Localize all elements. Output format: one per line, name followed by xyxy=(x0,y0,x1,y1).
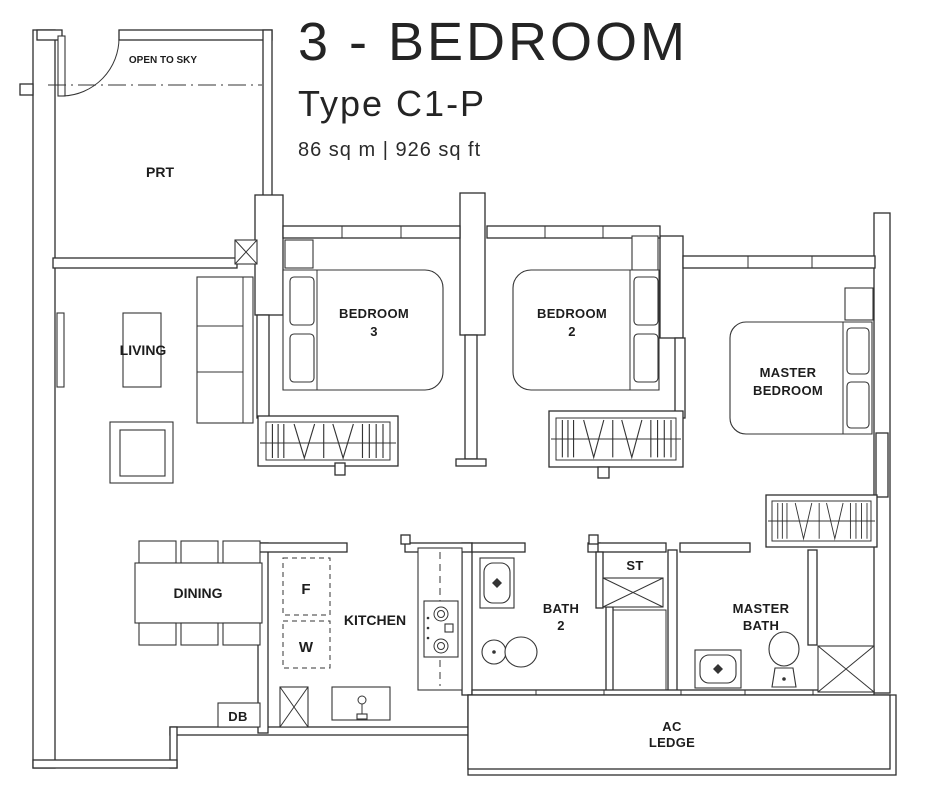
room-living: LIVING xyxy=(57,277,253,483)
bedside-table xyxy=(285,240,313,268)
bedroom2-label-2: 2 xyxy=(568,324,576,339)
st-label: ST xyxy=(626,558,643,573)
prt-door-swing xyxy=(63,38,119,96)
store-room: ST xyxy=(603,558,663,607)
dining-label: DINING xyxy=(174,585,223,601)
wardrobe-bedroom2 xyxy=(549,411,683,478)
bath2-shower xyxy=(613,610,666,690)
bedside-table xyxy=(845,288,873,320)
kitchen-label: KITCHEN xyxy=(344,612,406,628)
bed-bedroom3 xyxy=(283,270,443,390)
master-bath-toilet xyxy=(769,632,799,687)
master-bath-label-1: MASTER xyxy=(733,601,790,616)
dining-chair xyxy=(139,623,176,645)
bedside-table xyxy=(632,236,658,270)
sofa xyxy=(197,277,253,423)
master-bath-basin xyxy=(695,650,741,688)
prt-label: PRT xyxy=(146,164,174,180)
tv-console xyxy=(57,313,64,387)
fridge-label: F xyxy=(301,581,310,598)
db-box: DB xyxy=(218,703,260,727)
room-master-bedroom: MASTER BEDROOM xyxy=(730,288,877,547)
room-master-bath: MASTER BATH xyxy=(695,601,874,692)
dining-chair xyxy=(223,541,260,563)
master-shower xyxy=(818,646,874,692)
bath2-basin xyxy=(480,558,514,608)
master-bedroom-label-1: MASTER xyxy=(760,365,817,380)
bath2-label-2: 2 xyxy=(557,618,565,633)
open-to-sky-label: OPEN TO SKY xyxy=(129,55,197,66)
wardrobe-master xyxy=(766,495,877,547)
bedroom3-label-1: BEDROOM xyxy=(339,306,409,321)
bedroom2-label-1: BEDROOM xyxy=(537,306,607,321)
armchair xyxy=(110,422,173,483)
db-label: DB xyxy=(228,709,247,724)
kitchen-sink xyxy=(332,687,390,720)
bedroom3-label-2: 3 xyxy=(370,324,378,339)
floorplan-drawing: OPEN TO SKY PRT LIVING xyxy=(0,0,933,807)
room-dining: DINING DB xyxy=(135,541,262,727)
living-label: LIVING xyxy=(120,342,167,358)
master-bath-label-2: BATH xyxy=(743,618,779,633)
bed-bedroom2 xyxy=(513,270,659,390)
ac-ledge-label-2: LEDGE xyxy=(649,735,695,750)
room-prt: OPEN TO SKY PRT xyxy=(48,36,262,264)
wardrobe-bedroom3 xyxy=(258,416,398,475)
kitchen-shaft xyxy=(280,687,308,727)
dining-chair xyxy=(139,541,176,563)
room-bedroom3: BEDROOM 3 xyxy=(258,240,443,475)
bath2-toilet xyxy=(482,637,537,667)
room-kitchen: F W xyxy=(280,548,462,727)
room-bath2: BATH 2 ST xyxy=(480,558,666,690)
prt-door-leaf xyxy=(58,36,65,96)
ac-ledge: AC LEDGE xyxy=(468,695,896,775)
bath2-label-1: BATH xyxy=(543,601,579,616)
room-bedroom2: BEDROOM 2 xyxy=(513,236,683,478)
dining-chair xyxy=(181,623,218,645)
ac-ledge-label-1: AC xyxy=(662,719,682,734)
prt-shaft xyxy=(235,240,257,264)
dining-chair xyxy=(181,541,218,563)
washer-label: W xyxy=(299,639,314,656)
master-bedroom-label-2: BEDROOM xyxy=(753,383,823,398)
floorplan-page: 3 - BEDROOM Type C1-P 86 sq m | 926 sq f… xyxy=(0,0,933,807)
dining-chair xyxy=(223,623,260,645)
kitchen-counter xyxy=(418,548,462,690)
